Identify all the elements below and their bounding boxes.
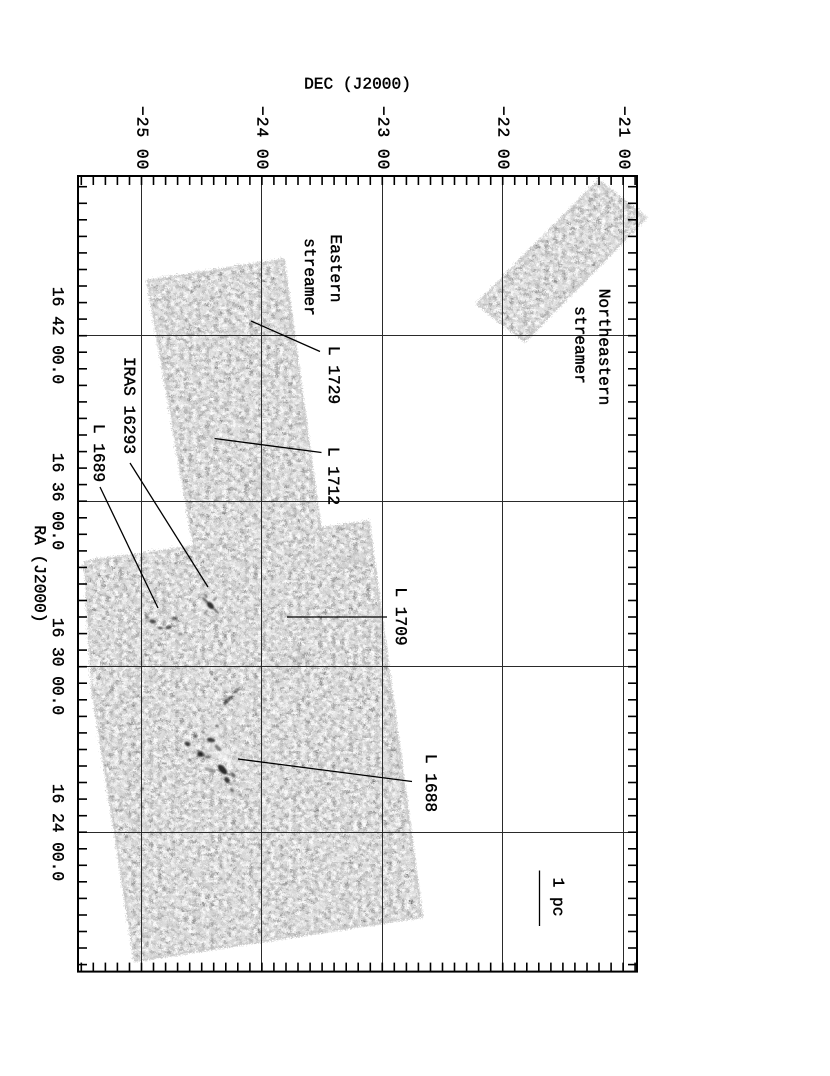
svg-text:−21 00: −21 00: [615, 106, 633, 170]
svg-text:L 1689: L 1689: [89, 424, 107, 482]
svg-text:1 pc: 1 pc: [549, 878, 567, 917]
svg-text:L 1729: L 1729: [324, 346, 342, 404]
svg-text:16 24 00.0: 16 24 00.0: [48, 784, 66, 881]
svg-text:16 36 00.0: 16 36 00.0: [48, 453, 66, 550]
svg-text:−25 00: −25 00: [133, 106, 151, 170]
svg-text:streamer: streamer: [300, 238, 318, 316]
svg-text:DEC (J2000): DEC (J2000): [304, 76, 411, 94]
svg-text:16 30 00.0: 16 30 00.0: [48, 618, 66, 715]
svg-text:L 1712: L 1712: [324, 447, 342, 505]
svg-text:Eastern: Eastern: [326, 235, 344, 303]
svg-text:L 1688: L 1688: [421, 754, 439, 812]
svg-text:streamer: streamer: [571, 306, 589, 384]
svg-text:L 1709: L 1709: [391, 587, 409, 645]
svg-text:IRAS 16293: IRAS 16293: [119, 357, 137, 454]
svg-text:−24 00: −24 00: [253, 106, 271, 170]
svg-text:Northeastern: Northeastern: [595, 289, 613, 406]
svg-text:16 42 00.0: 16 42 00.0: [48, 287, 66, 384]
svg-text:−23 00: −23 00: [374, 106, 392, 170]
svg-text:−22 00: −22 00: [494, 106, 512, 170]
svg-text:RA (J2000): RA (J2000): [30, 525, 48, 622]
